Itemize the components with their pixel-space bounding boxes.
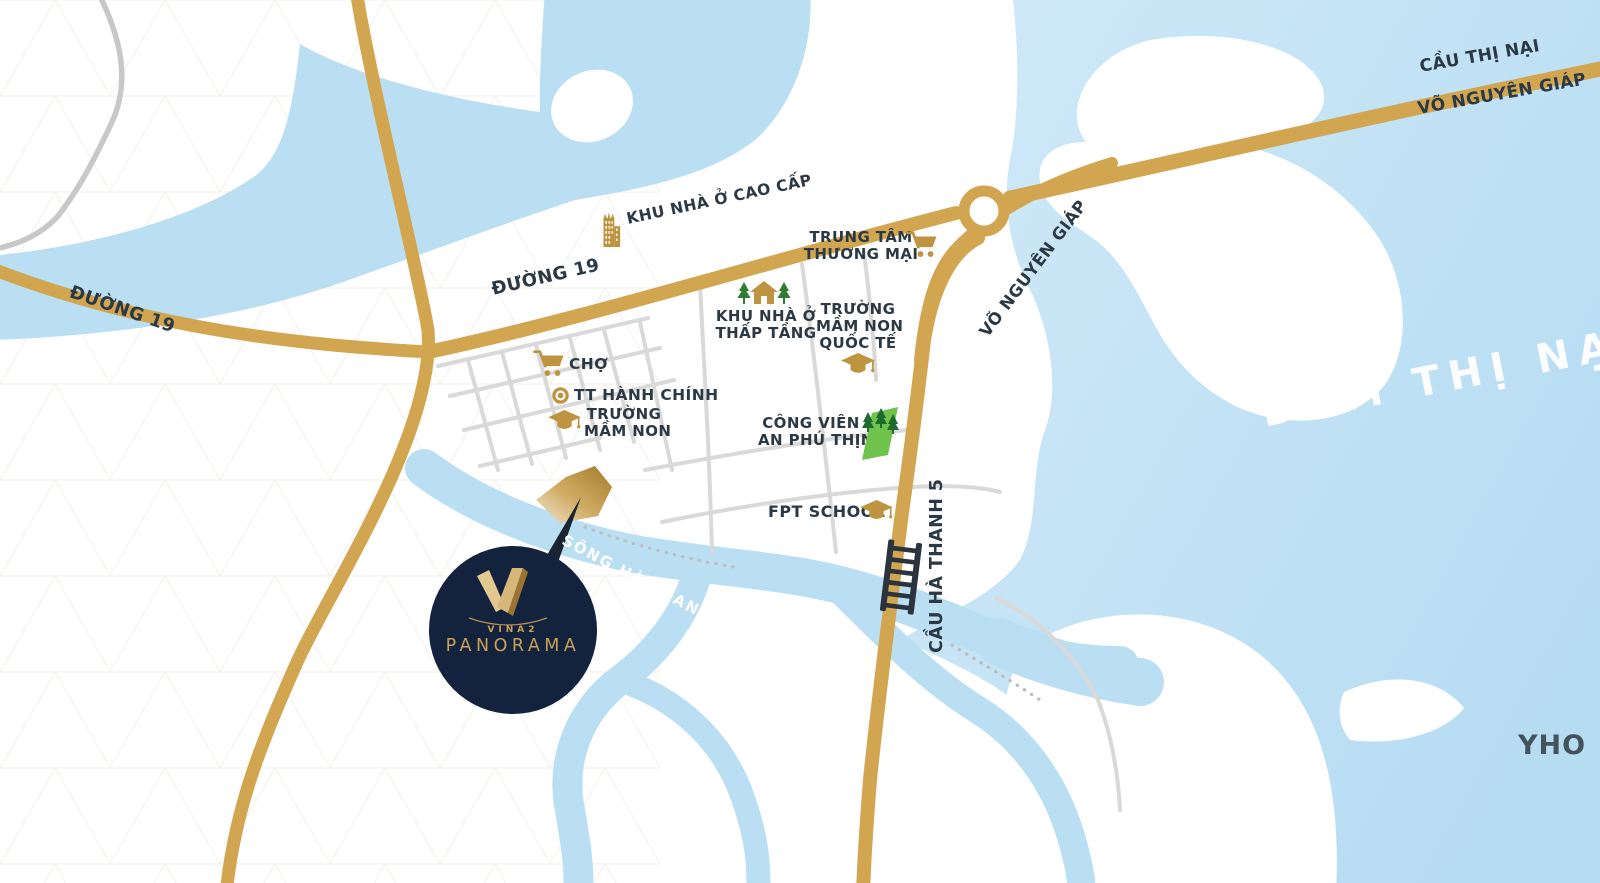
landmark-cong-vien-an-phu-thinh: CÔNG VIÊN AN PHÚ THỊNH bbox=[758, 415, 864, 449]
logo-brand-text: VINA2 bbox=[463, 625, 563, 635]
edge-partial-text: YHO bbox=[1518, 731, 1586, 761]
building-icon bbox=[600, 212, 622, 247]
bridge-label-cau-ha-thanh-5: CẦU HÀ THANH 5 bbox=[928, 476, 948, 656]
shopping-cart-icon bbox=[906, 231, 938, 259]
logo-name-text: PANORAMA bbox=[438, 637, 588, 657]
landmark-khu-nha-o-thap-tang: KHU NHÀ Ở THẤP TẦNG bbox=[714, 308, 818, 342]
landmark-tt-hanh-chinh: TT HÀNH CHÍNH bbox=[574, 387, 718, 404]
shopping-cart-icon bbox=[533, 350, 565, 378]
graduation-cap-icon bbox=[860, 500, 893, 523]
target-icon bbox=[551, 386, 570, 405]
roundabout bbox=[964, 191, 1004, 231]
landmark-truong-mam-non-quoc-te: TRƯỜNG MẦM NON QUỐC TẾ bbox=[816, 301, 900, 351]
landmark-truong-mam-non: TRƯỜNG MẦM NON bbox=[584, 406, 664, 440]
landmark-cho: CHỢ bbox=[569, 356, 608, 373]
park-trees-icon bbox=[858, 406, 902, 460]
graduation-cap-icon bbox=[841, 353, 875, 377]
graduation-cap-icon bbox=[548, 410, 581, 433]
map-canvas: ĐƯỜNG 19 ĐƯỜNG 19 CẦU THỊ NẠI VÕ NGUYÊN … bbox=[0, 0, 1600, 883]
house-trees-icon bbox=[737, 280, 791, 310]
